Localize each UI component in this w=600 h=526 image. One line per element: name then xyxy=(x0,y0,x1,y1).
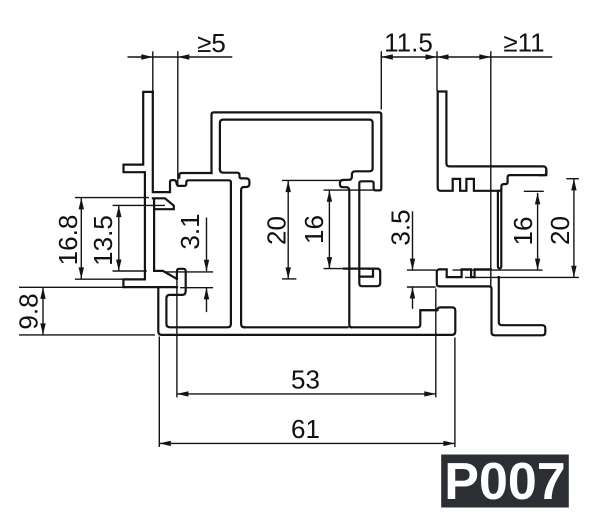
svg-text:53: 53 xyxy=(291,365,320,395)
svg-text:P007: P007 xyxy=(444,453,565,511)
svg-text:20: 20 xyxy=(545,216,575,245)
svg-text:3.1: 3.1 xyxy=(175,213,205,249)
svg-text:13.5: 13.5 xyxy=(88,215,118,266)
svg-text:≥5: ≥5 xyxy=(197,28,226,58)
svg-text:11.5: 11.5 xyxy=(384,28,433,58)
svg-text:16: 16 xyxy=(508,217,538,246)
svg-text:16: 16 xyxy=(299,215,329,244)
svg-text:16.8: 16.8 xyxy=(53,215,83,266)
svg-text:9.8: 9.8 xyxy=(14,293,44,329)
svg-text:61: 61 xyxy=(291,414,320,444)
svg-text:3.5: 3.5 xyxy=(386,209,416,245)
svg-text:20: 20 xyxy=(262,216,292,245)
svg-text:≥11: ≥11 xyxy=(503,28,544,58)
